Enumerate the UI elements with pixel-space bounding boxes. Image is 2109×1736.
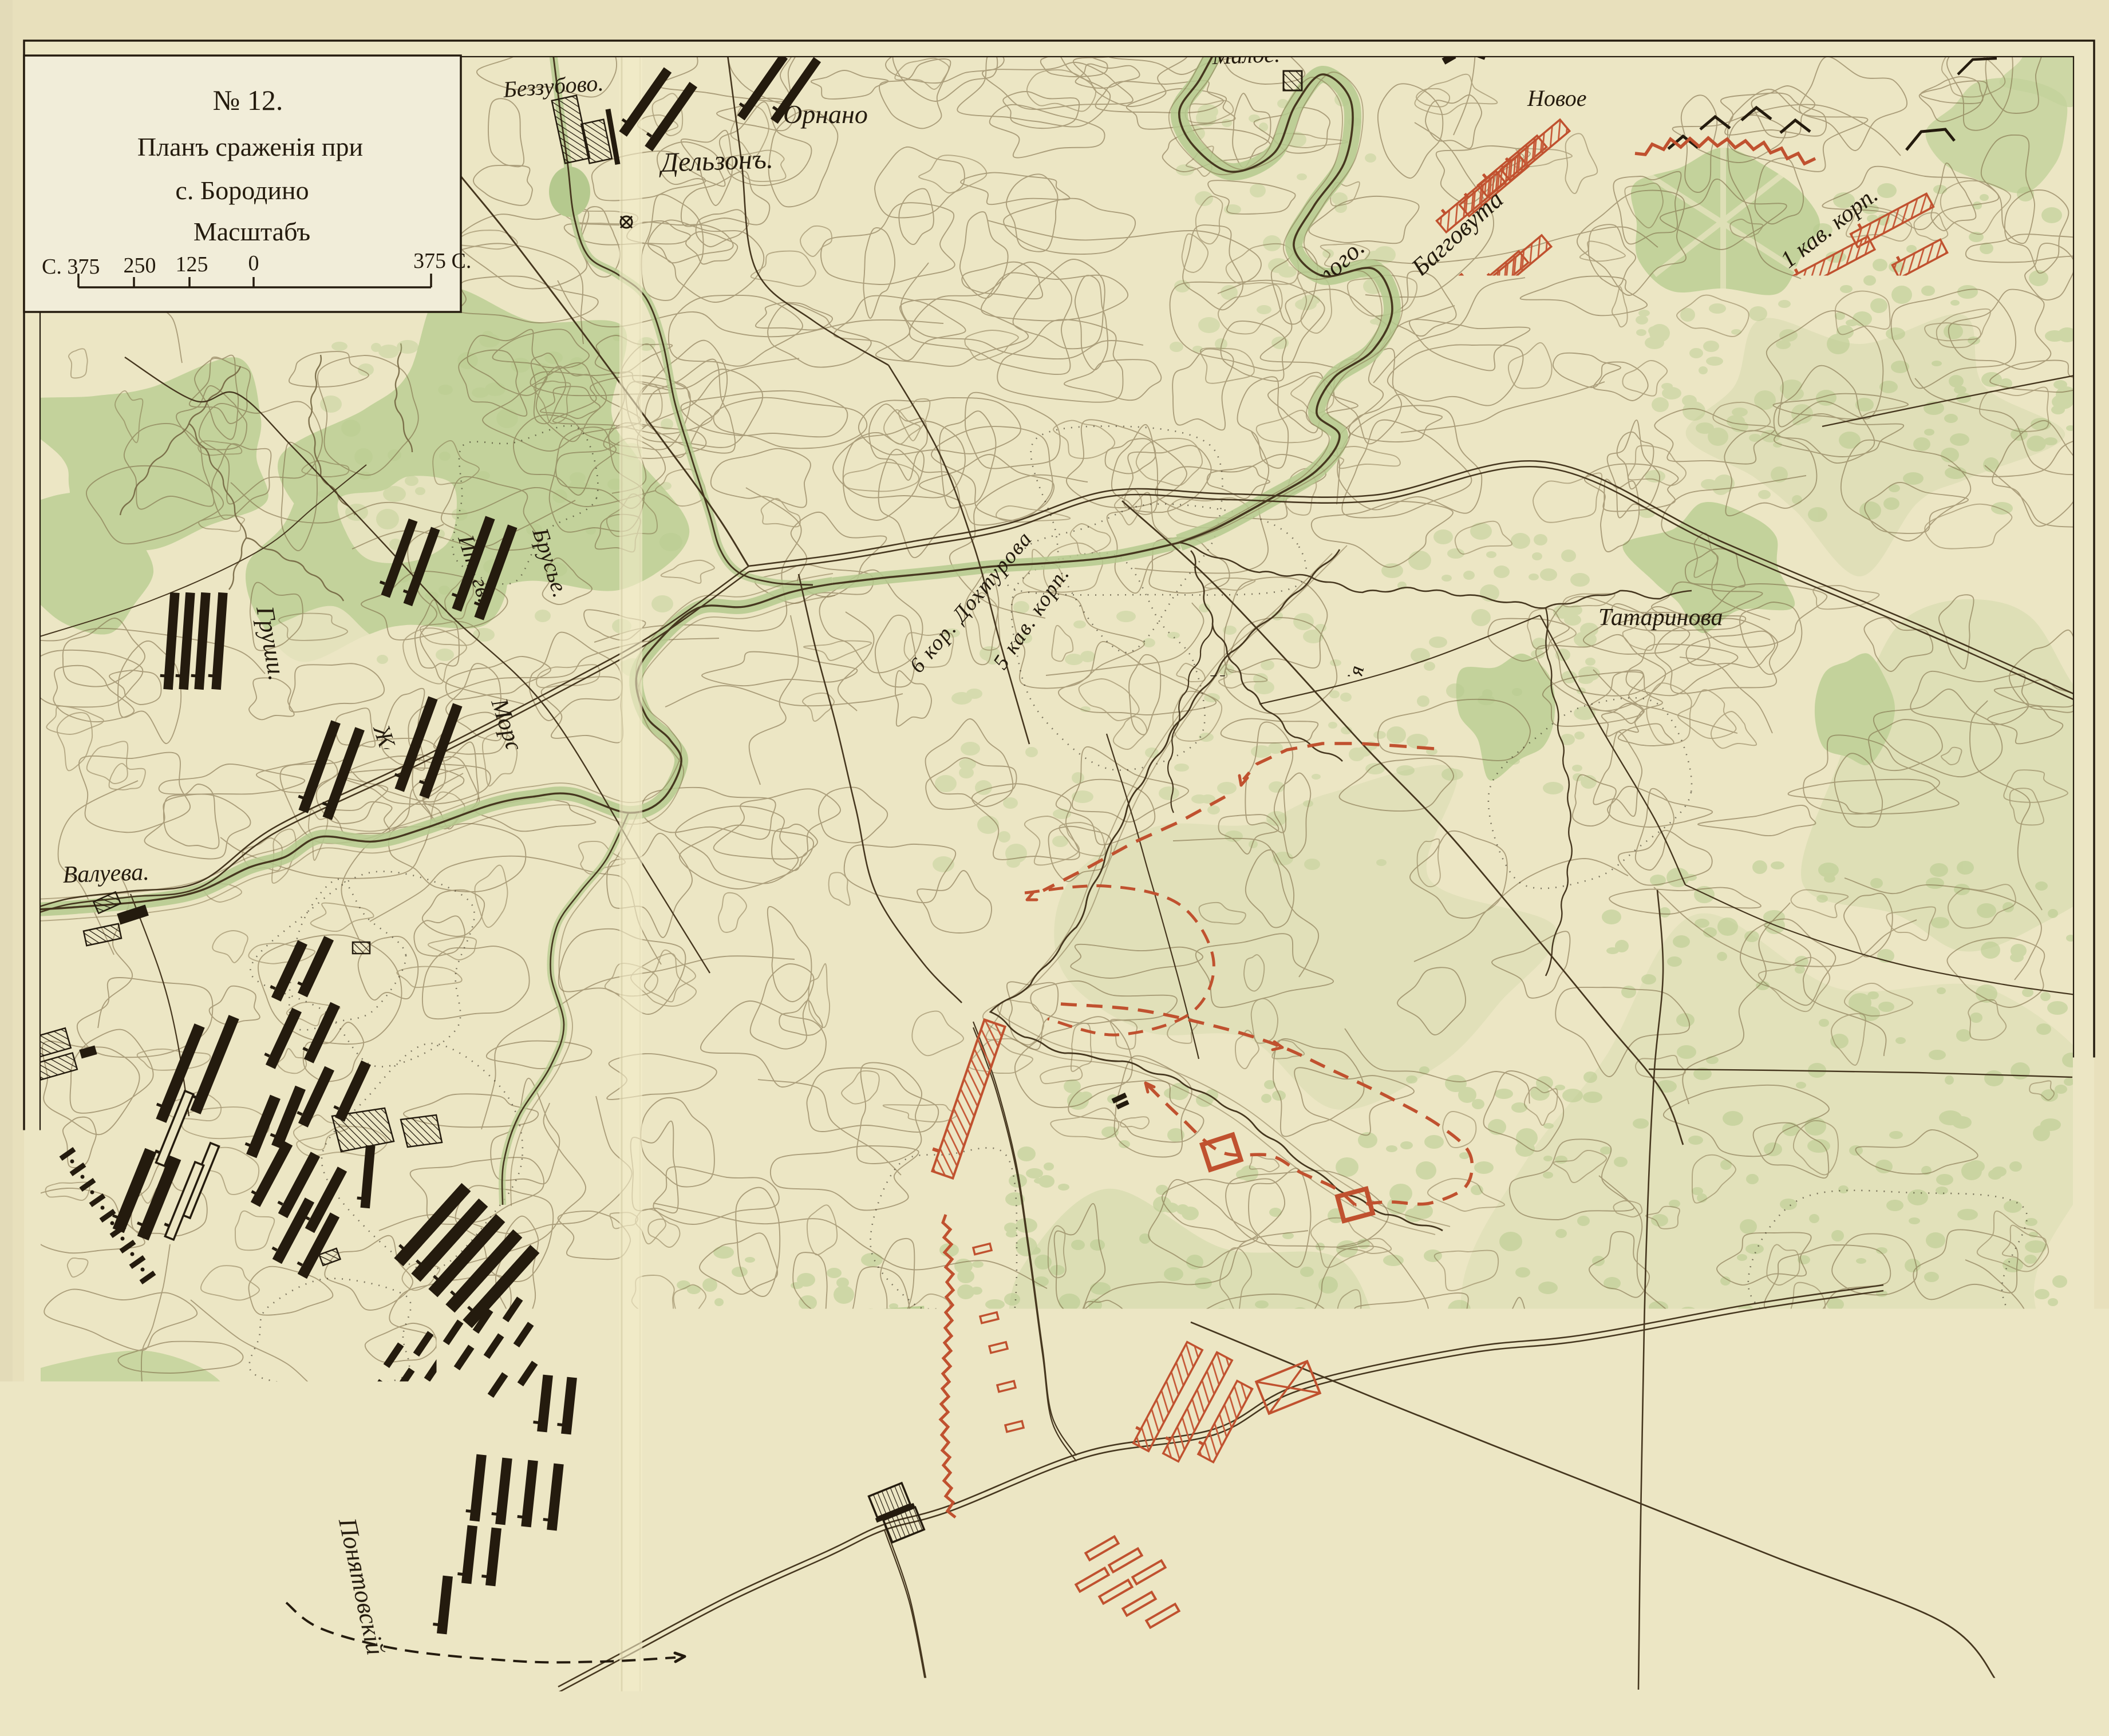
svg-text:С. 375: С. 375 (42, 255, 100, 279)
svg-text:Бородино: Бородино (629, 547, 733, 578)
svg-text:Планъ сраженія при: Планъ сраженія при (137, 132, 363, 161)
svg-text:Резерв. артил.: Резерв. артил. (1664, 1020, 1806, 1046)
svg-text:Псарево: Псарево (1628, 910, 1712, 936)
svg-text:375 С.: 375 С. (413, 249, 471, 273)
svg-text:Шевардино.: Шевардино. (455, 1076, 579, 1102)
svg-text:Картографич. завед. А. Руднева: Картографич. завед. А. Руднева. СПб. Нов… (1780, 1706, 2092, 1721)
svg-text:Алексенскій: Алексенскій (358, 946, 468, 970)
svg-text:Фомкино.: Фомкино. (48, 1081, 147, 1108)
svg-text:№ 12.: № 12. (213, 84, 283, 116)
svg-text:Утица.: Утица. (793, 1510, 870, 1536)
svg-text:Доронино: Доронино (226, 1267, 327, 1294)
svg-text:Дельзонъ.: Дельзонъ. (658, 144, 774, 178)
svg-text:Масштабъ: Масштабъ (193, 217, 310, 246)
svg-text:Семеновская: Семеновская (856, 992, 981, 1018)
svg-text:3-е. пол.: 3-е. пол. (1369, 1213, 1456, 1241)
svg-text:Князьково.: Князьково. (1207, 671, 1318, 697)
svg-text:Горки.: Горки. (1086, 493, 1155, 521)
svg-text:с. Бородино: с. Бородино (175, 176, 309, 205)
svg-text:Ащепкова: Ащепкова (1737, 1082, 1835, 1108)
svg-text:Татаринова: Татаринова (1598, 604, 1723, 631)
svg-text:0: 0 (248, 251, 259, 275)
svg-text:Звягина: Звягина (1590, 712, 1669, 738)
svg-text:Валуева.: Валуева. (62, 859, 150, 888)
svg-text:Орнано: Орнано (783, 100, 868, 129)
svg-text:Новое: Новое (1527, 85, 1586, 111)
svg-text:Захарьино.: Захарьино. (921, 364, 1032, 390)
svg-text:250: 250 (124, 254, 156, 278)
svg-text:Л.Гв.Ф.п.: Л.Гв.Ф.п. (1222, 738, 1322, 766)
svg-text:4-ое. пол.: 4-ое. пол. (1113, 1170, 1213, 1199)
svg-text:125: 125 (176, 252, 208, 276)
svg-text:1ое. п.: 1ое. п. (1274, 780, 1342, 808)
